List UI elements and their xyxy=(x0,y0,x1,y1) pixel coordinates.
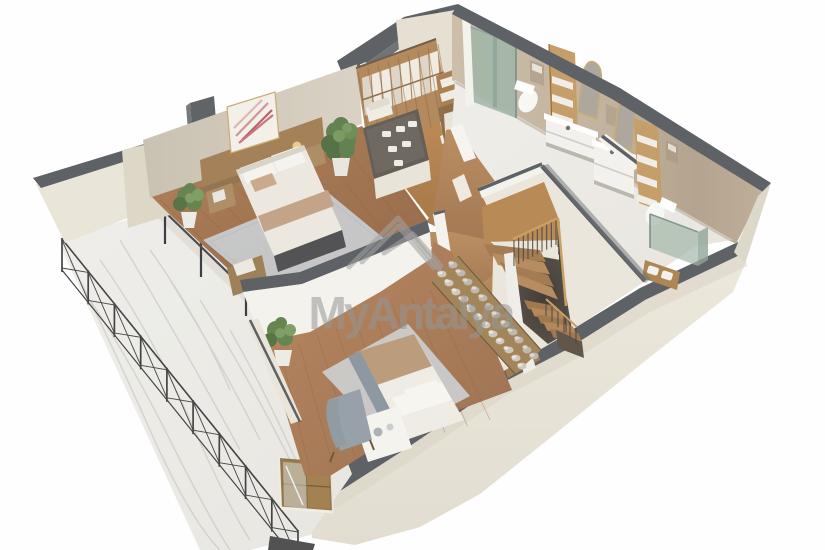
svg-text:MyAntalya: MyAntalya xyxy=(309,287,516,339)
